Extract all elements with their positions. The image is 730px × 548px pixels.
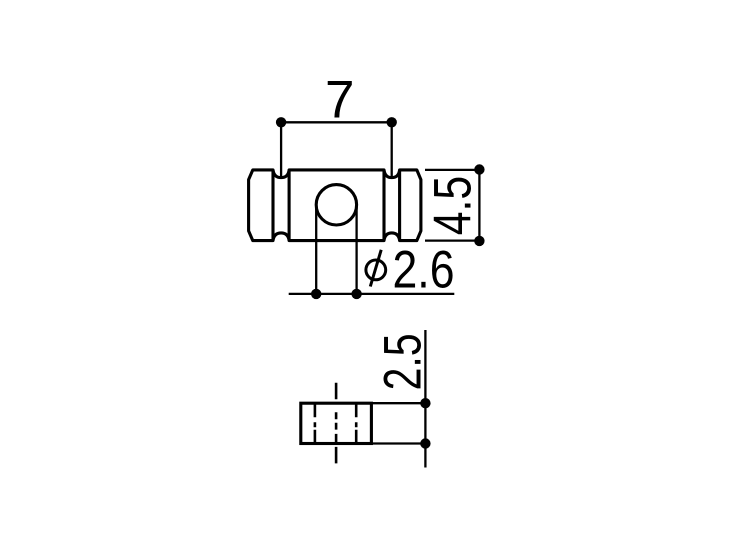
svg-text:4.5: 4.5 [423,176,482,236]
svg-text:2.6: 2.6 [393,241,455,300]
svg-text:2.5: 2.5 [374,333,433,390]
svg-text:7: 7 [325,70,354,129]
